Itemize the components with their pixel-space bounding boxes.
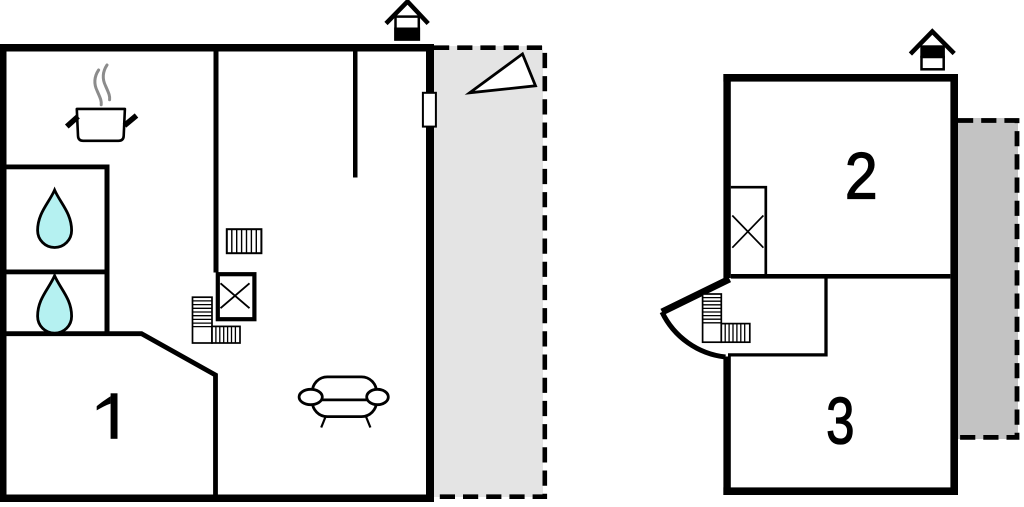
svg-text:3: 3 [826, 385, 854, 457]
svg-text:2: 2 [845, 140, 878, 213]
